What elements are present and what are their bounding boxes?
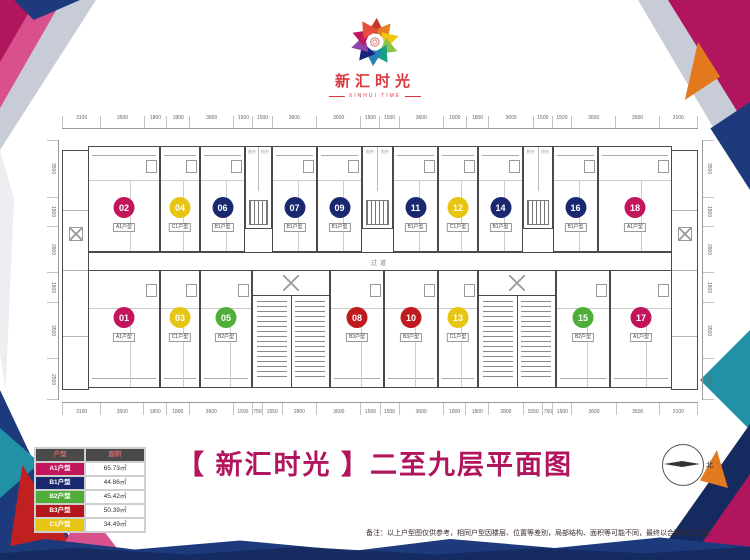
compass-needle-icon xyxy=(662,444,702,484)
stairs-icon xyxy=(479,295,555,387)
balcony xyxy=(204,147,241,156)
unit-row-top: 02A1户型04C1户型06B1户型07B1户型09B1户型11B1户型12C1… xyxy=(62,146,698,252)
unit-type-label: C1户型 xyxy=(169,223,191,232)
unit-type-label: A1户型 xyxy=(113,333,135,342)
dimension-value: 3500 xyxy=(703,302,714,359)
dimension-value: 1500 xyxy=(233,116,252,128)
dimension-value: 3100 xyxy=(62,116,100,128)
unit-number-badge: 16 xyxy=(565,197,586,218)
unit-number-badge: 05 xyxy=(216,307,237,328)
unit-01: 01A1户型 xyxy=(88,270,160,388)
dimension-value: 1500 xyxy=(552,403,571,415)
dimension-value: 750 xyxy=(542,403,552,415)
bathroom xyxy=(584,160,595,173)
unit-number-badge: 01 xyxy=(114,307,135,328)
floor-plan: 02A1户型04C1户型06B1户型07B1户型09B1户型11B1户型12C1… xyxy=(62,140,698,400)
bathroom xyxy=(596,284,607,297)
dimension-value: 3500 xyxy=(47,302,58,359)
unit-09: 09B1户型 xyxy=(317,146,362,252)
dimension-value: 1500 xyxy=(360,116,379,128)
unit-number-badge: 11 xyxy=(405,197,426,218)
dimension-value: 3600 xyxy=(316,403,360,415)
unit-type-label: A1户型 xyxy=(624,223,646,232)
balcony xyxy=(482,147,519,156)
north-label: 北 xyxy=(706,460,713,470)
dimension-value: 1800 xyxy=(143,403,166,415)
dimension-value: 2800 xyxy=(488,403,523,415)
dimension-value: 3500 xyxy=(100,403,143,415)
dimension-value: 3600 xyxy=(399,403,443,415)
unit-type-label: B1户型 xyxy=(404,223,426,232)
unit-12: 12C1户型 xyxy=(438,146,478,252)
dimension-value: 1800 xyxy=(443,116,466,128)
legend-area: 34.49㎡ xyxy=(86,519,144,531)
partition-line xyxy=(479,180,522,181)
bathroom xyxy=(464,160,475,173)
equipment-grille xyxy=(366,200,389,225)
unit-type-label: B1户型 xyxy=(564,223,586,232)
balcony xyxy=(164,147,196,156)
shaft-cells: 阳台阳台 xyxy=(524,147,552,191)
bathroom xyxy=(186,160,197,173)
partition-line xyxy=(318,180,361,181)
partition-line xyxy=(554,180,597,181)
dimension-strip-bottom: 3100350018001800360015007501550280036001… xyxy=(62,402,698,415)
dimension-value: 2500 xyxy=(703,358,714,400)
dimension-value: 1800 xyxy=(144,116,167,128)
dimension-value: 2800 xyxy=(282,403,317,415)
dimension-value: 1800 xyxy=(47,197,58,227)
partition-line xyxy=(439,180,477,181)
dimension-value: 3100 xyxy=(62,403,100,415)
unit-number-badge: 15 xyxy=(573,307,594,328)
decor-line xyxy=(405,96,421,97)
dimension-value: 3500 xyxy=(47,140,58,197)
elevator-icon xyxy=(479,271,555,296)
dimension-value: 1500 xyxy=(533,116,552,128)
unit-type-label: B2户型 xyxy=(215,333,237,342)
partition-line xyxy=(394,180,437,181)
partition-line xyxy=(161,180,199,181)
unit-06: 06B1户型 xyxy=(200,146,245,252)
balcony xyxy=(442,378,474,387)
unit-type-label: C1户型 xyxy=(169,333,191,342)
balcony-label: 阳台 xyxy=(363,147,377,191)
dimension-value: 3100 xyxy=(659,116,698,128)
partition-line xyxy=(273,180,316,181)
dimension-value: 3600 xyxy=(399,116,443,128)
dimension-value: 1500 xyxy=(379,116,398,128)
unit-number-badge: 06 xyxy=(212,197,233,218)
unit-number-badge: 03 xyxy=(170,307,191,328)
dimension-value: 1500 xyxy=(552,116,571,128)
balcony-label: 阳台 xyxy=(246,147,258,191)
unit-08: 08B3户型 xyxy=(330,270,384,388)
unit-07: 07B1户型 xyxy=(272,146,317,252)
dimension-strip-left: 350018002800180035002500 xyxy=(47,140,59,400)
unit-14: 14B1户型 xyxy=(478,146,523,252)
unit-row-bottom: 01A1户型03C1户型05B2户型08B3户型10B3户型13C1户型15B2… xyxy=(62,270,698,388)
unit-04: 04C1户型 xyxy=(160,146,200,252)
legend-type: C1户型 xyxy=(36,519,84,531)
balcony xyxy=(204,378,248,387)
partition-line xyxy=(599,180,671,181)
dimension-value: 750 xyxy=(252,403,262,415)
dimension-value: 1800 xyxy=(166,403,189,415)
equipment-grille xyxy=(249,200,268,225)
legend-area: 50.39㎡ xyxy=(86,505,144,517)
legend-header-area: 面积 xyxy=(86,449,144,461)
unit-number-badge: 02 xyxy=(114,197,135,218)
legend-type: B1户型 xyxy=(36,477,84,489)
unit-16: 16B1户型 xyxy=(553,146,598,252)
bathroom xyxy=(146,284,157,297)
unit-11: 11B1户型 xyxy=(393,146,438,252)
logo-subtitle: XINHUI TIME xyxy=(329,93,421,99)
legend-type: A1户型 xyxy=(36,463,84,475)
legend-table: 户型 面积 A1户型65.73㎡B1户型44.86㎡B2户型45.42㎡B3户型… xyxy=(34,447,146,533)
balcony-label: 阳台 xyxy=(258,147,271,191)
stair-block xyxy=(478,270,556,388)
legend-header-type: 户型 xyxy=(36,449,84,461)
stair-block xyxy=(252,270,330,388)
unit-number-badge: 10 xyxy=(401,307,422,328)
balcony-label: 阳台 xyxy=(538,147,553,191)
dimension-value: 3600 xyxy=(272,116,316,128)
dimension-strip-top: 3100350018001800360015001500360036001500… xyxy=(62,116,698,129)
dimension-value: 3500 xyxy=(100,116,143,128)
dimension-value: 1500 xyxy=(360,403,379,415)
dimension-value: 3100 xyxy=(659,403,698,415)
unit-type-label: B1户型 xyxy=(283,223,305,232)
unit-type-label: B3户型 xyxy=(346,333,368,342)
unit-type-label: A1户型 xyxy=(630,333,652,342)
dimension-value: 1500 xyxy=(233,403,252,415)
dimension-value: 2500 xyxy=(47,358,58,400)
bathroom xyxy=(424,284,435,297)
balcony xyxy=(397,147,434,156)
dimension-value: 3600 xyxy=(571,116,615,128)
elevator-icon xyxy=(253,271,329,296)
unit-type-label: A1户型 xyxy=(113,223,135,232)
unit-number-badge: 04 xyxy=(170,197,191,218)
disclaimer-note: 备注：以上户型图仅供参考，相同户型因楼层、位置等差别，局部结构、面积等可能不同，… xyxy=(330,528,716,538)
dimension-value: 1800 xyxy=(703,272,714,302)
dimension-value: 3600 xyxy=(488,116,532,128)
balcony xyxy=(164,378,196,387)
unit-number-badge: 09 xyxy=(329,197,350,218)
corridor-label: 过道 xyxy=(371,258,389,267)
shaft-cells: 阳台阳台 xyxy=(363,147,392,191)
floor-plan-sheet: 新汇时光 XINHUI TIME 31003500180018003600150… xyxy=(0,0,750,560)
dimension-value: 1500 xyxy=(380,403,399,415)
logo: 新汇时光 XINHUI TIME xyxy=(329,16,421,99)
balcony xyxy=(442,147,474,156)
logo-name: 新汇时光 xyxy=(335,70,415,91)
unit-number-badge: 17 xyxy=(631,307,652,328)
dimension-value: 3500 xyxy=(703,140,714,197)
legend-type: B3户型 xyxy=(36,505,84,517)
dimension-value: 2800 xyxy=(703,226,714,272)
bathroom xyxy=(186,284,197,297)
bathroom xyxy=(238,284,249,297)
dimension-value: 1800 xyxy=(465,403,488,415)
bathroom xyxy=(146,160,157,173)
dimension-strip-right: 350018002800180035002500 xyxy=(702,140,714,400)
unit-type-label: C1户型 xyxy=(447,223,469,232)
unit-type-label: C1户型 xyxy=(447,333,469,342)
balcony xyxy=(602,147,668,156)
bathroom xyxy=(231,160,242,173)
bathroom xyxy=(509,160,520,173)
balcony xyxy=(557,147,594,156)
dimension-value: 1550 xyxy=(523,403,543,415)
legend-area: 44.86㎡ xyxy=(86,477,144,489)
unit-number-badge: 07 xyxy=(284,197,305,218)
unit-02: 02A1户型 xyxy=(88,146,160,252)
unit-type-label: B3户型 xyxy=(400,333,422,342)
shaft-block: 阳台阳台 xyxy=(362,146,393,229)
dimension-value: 1500 xyxy=(252,116,271,128)
unit-number-badge: 14 xyxy=(490,197,511,218)
partition-line xyxy=(89,180,159,181)
bathroom xyxy=(370,284,381,297)
dimension-value: 1800 xyxy=(166,116,189,128)
balcony xyxy=(92,378,156,387)
dimension-value: 1800 xyxy=(703,197,714,227)
unit-18: 18A1户型 xyxy=(598,146,672,252)
balcony xyxy=(614,378,668,387)
dimension-value: 1800 xyxy=(466,116,489,128)
dimension-value: 3600 xyxy=(189,116,233,128)
unit-number-badge: 13 xyxy=(448,307,469,328)
equipment-grille xyxy=(527,200,549,225)
bathroom xyxy=(658,284,669,297)
corridor: 过道 xyxy=(89,252,671,272)
decor-line xyxy=(329,96,345,97)
unit-03: 03C1户型 xyxy=(160,270,200,388)
unit-13: 13C1户型 xyxy=(438,270,478,388)
unit-15: 15B2户型 xyxy=(556,270,610,388)
bathroom xyxy=(424,160,435,173)
unit-type-label: B1户型 xyxy=(489,223,511,232)
unit-type-label: B1户型 xyxy=(211,223,233,232)
balcony xyxy=(560,378,606,387)
shaft-block: 阳台阳台 xyxy=(523,146,553,229)
unit-17: 17A1户型 xyxy=(610,270,672,388)
balcony xyxy=(334,378,380,387)
dimension-value: 3500 xyxy=(616,403,659,415)
bathroom xyxy=(348,160,359,173)
dimension-value: 1800 xyxy=(443,403,466,415)
balcony-label: 阳台 xyxy=(524,147,538,191)
bathroom xyxy=(464,284,475,297)
unit-05: 05B2户型 xyxy=(200,270,252,388)
dimension-value: 3600 xyxy=(571,403,615,415)
unit-type-label: B1户型 xyxy=(328,223,350,232)
decor-shard xyxy=(0,150,14,390)
balcony xyxy=(92,147,156,156)
balcony xyxy=(388,378,434,387)
legend-area: 45.42㎡ xyxy=(86,491,144,503)
balcony-label: 阳台 xyxy=(377,147,392,191)
dimension-value: 1800 xyxy=(47,272,58,302)
dimension-value: 3500 xyxy=(615,116,658,128)
compass: 北 xyxy=(662,444,718,486)
bathroom xyxy=(303,160,314,173)
balcony xyxy=(276,147,313,156)
shaft-cells: 阳台阳台 xyxy=(246,147,271,191)
legend-area: 65.73㎡ xyxy=(86,463,144,475)
unit-type-label: B2户型 xyxy=(572,333,594,342)
partition-line xyxy=(201,180,244,181)
shaft-block: 阳台阳台 xyxy=(245,146,272,229)
dimension-value: 2800 xyxy=(47,226,58,272)
stairs-icon xyxy=(253,295,329,387)
dimension-value: 3600 xyxy=(189,403,233,415)
legend-type: B2户型 xyxy=(36,491,84,503)
balcony xyxy=(321,147,358,156)
logo-pinwheel-icon xyxy=(349,16,401,68)
unit-number-badge: 12 xyxy=(448,197,469,218)
unit-number-badge: 08 xyxy=(347,307,368,328)
dimension-value: 1550 xyxy=(262,403,282,415)
dimension-value: 3600 xyxy=(316,116,360,128)
bathroom xyxy=(658,160,669,173)
unit-number-badge: 18 xyxy=(625,197,646,218)
unit-10: 10B3户型 xyxy=(384,270,438,388)
